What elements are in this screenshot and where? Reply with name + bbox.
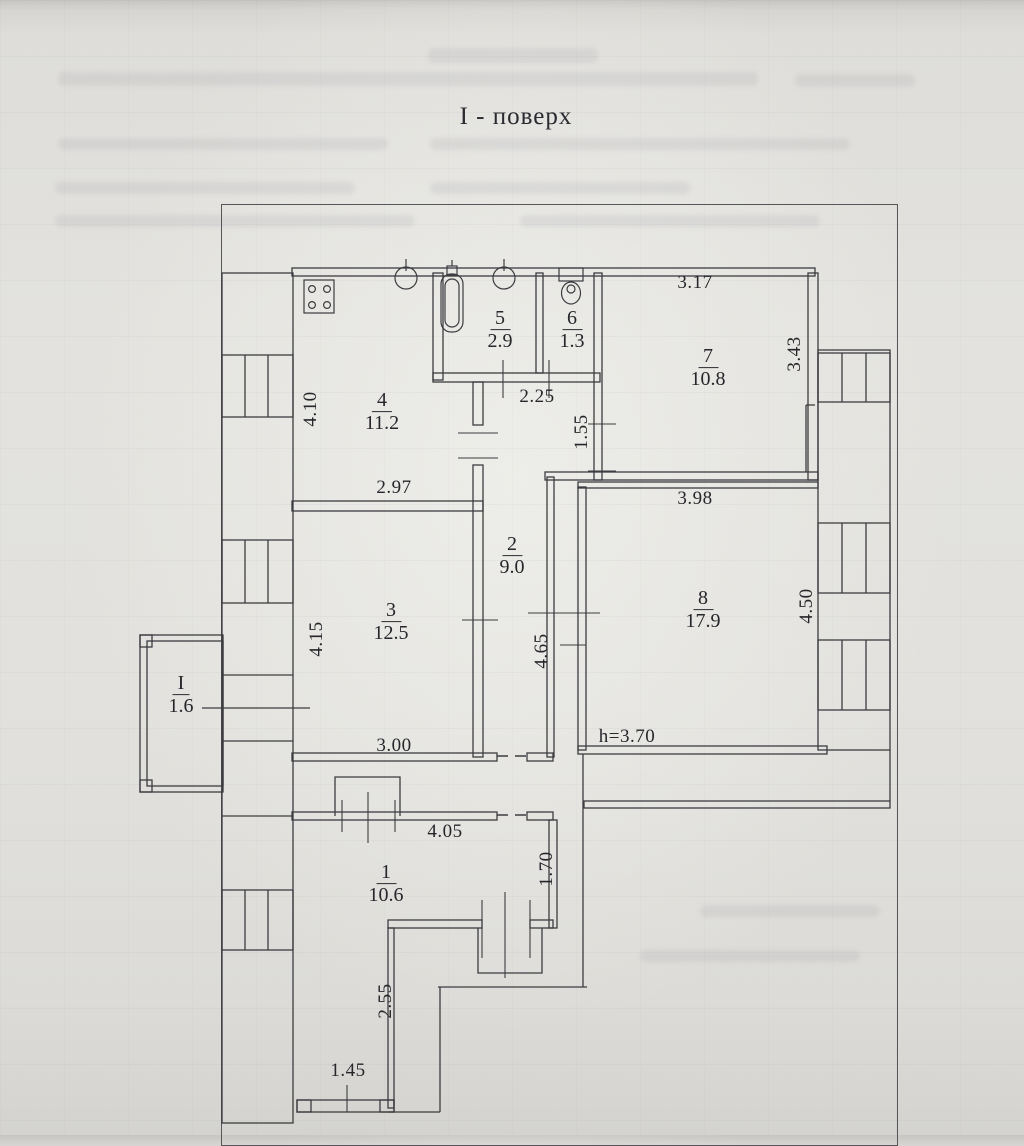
room-label-5: 5 2.9 (488, 308, 513, 352)
dim-room8-top: 3.98 (677, 488, 712, 510)
window-west-2 (222, 540, 293, 603)
room-number: I (173, 673, 190, 695)
window-west-1 (222, 355, 293, 417)
wall-south-east (584, 801, 890, 808)
wall-room7-west (594, 273, 602, 480)
building-walls (140, 268, 890, 1123)
room-area: 11.2 (365, 413, 399, 434)
dim-porch-bottom: 1.45 (330, 1060, 365, 1082)
open-passages (497, 756, 529, 815)
vent-icon (395, 259, 417, 289)
dim-room4-bottom: 2.97 (376, 477, 411, 499)
room-label-7: 7 10.8 (691, 346, 726, 390)
wall-hall-west-upper (473, 382, 483, 425)
dim-room8-right: 4.50 (796, 588, 818, 623)
wall-hall-west-lower (473, 465, 483, 757)
room-area: 1.3 (560, 331, 585, 352)
room-area: 1.6 (169, 696, 194, 717)
room-number: 6 (562, 308, 582, 330)
room-number: 5 (490, 308, 510, 330)
bathtub-icon (441, 260, 463, 332)
room-label-balcony: I 1.6 (169, 673, 194, 717)
stove-icon (304, 280, 334, 313)
dim-room7-top: 3.17 (677, 272, 712, 294)
wall-room7-east (808, 273, 818, 480)
room-area: 2.9 (488, 331, 513, 352)
room-number: 3 (381, 600, 401, 622)
room-area: 10.8 (691, 369, 726, 390)
page-title: I - поверх (460, 103, 573, 131)
dim-ceiling-height: h=3.70 (599, 726, 655, 748)
room-number: 7 (698, 346, 718, 368)
wall-room7-south (545, 472, 818, 480)
room-area: 12.5 (374, 623, 409, 644)
entrance-stoop (478, 928, 542, 973)
dim-room3-left: 4.15 (306, 621, 328, 656)
room-area: 17.9 (686, 611, 721, 632)
dim-porch-right: 2.55 (375, 983, 397, 1018)
wall-north (292, 268, 815, 276)
dim-hall-top-right: 1.55 (571, 414, 593, 449)
wall-room1-south-a (388, 920, 482, 928)
room-label-1: 1 10.6 (369, 862, 404, 906)
window-east-1 (818, 353, 890, 402)
toilet-icon (559, 268, 583, 304)
dim-room1-top: 4.05 (427, 821, 462, 843)
window-east-2 (818, 523, 890, 593)
wall-room8-west (578, 487, 586, 750)
room-area: 9.0 (500, 557, 525, 578)
room-label-6: 6 1.3 (560, 308, 585, 352)
wall-west-band (222, 273, 293, 1123)
vent-icon (493, 259, 515, 289)
dim-room1-right: 1.70 (536, 851, 558, 886)
wall-bath-divider (536, 273, 543, 373)
dim-room4-left: 4.10 (300, 391, 322, 426)
room-number: 4 (372, 390, 392, 412)
wall-room4-south (292, 501, 483, 511)
wall-bath-south (433, 373, 600, 382)
wall-hall-east (547, 477, 554, 757)
room-number: 8 (693, 588, 713, 610)
dim-hall-middle: 4.65 (531, 633, 553, 668)
room-label-2: 2 9.0 (500, 534, 525, 578)
scanned-floor-plan-page: { "title": "I - поверх", "rooms": { "r1"… (0, 0, 1024, 1135)
dim-room7-right: 3.43 (784, 336, 806, 371)
window-west-3 (222, 890, 293, 950)
wall-east-band (818, 350, 890, 750)
dim-room3-bottom: 3.00 (376, 735, 411, 757)
room-number: 1 (376, 862, 396, 884)
dim-bath-passage: 2.25 (519, 386, 554, 408)
room-area: 10.6 (369, 885, 404, 906)
room-label-8: 8 17.9 (686, 588, 721, 632)
room-label-3: 3 12.5 (374, 600, 409, 644)
window-east-3 (818, 640, 890, 710)
room-label-4: 4 11.2 (365, 390, 399, 434)
room-number: 2 (502, 534, 522, 556)
